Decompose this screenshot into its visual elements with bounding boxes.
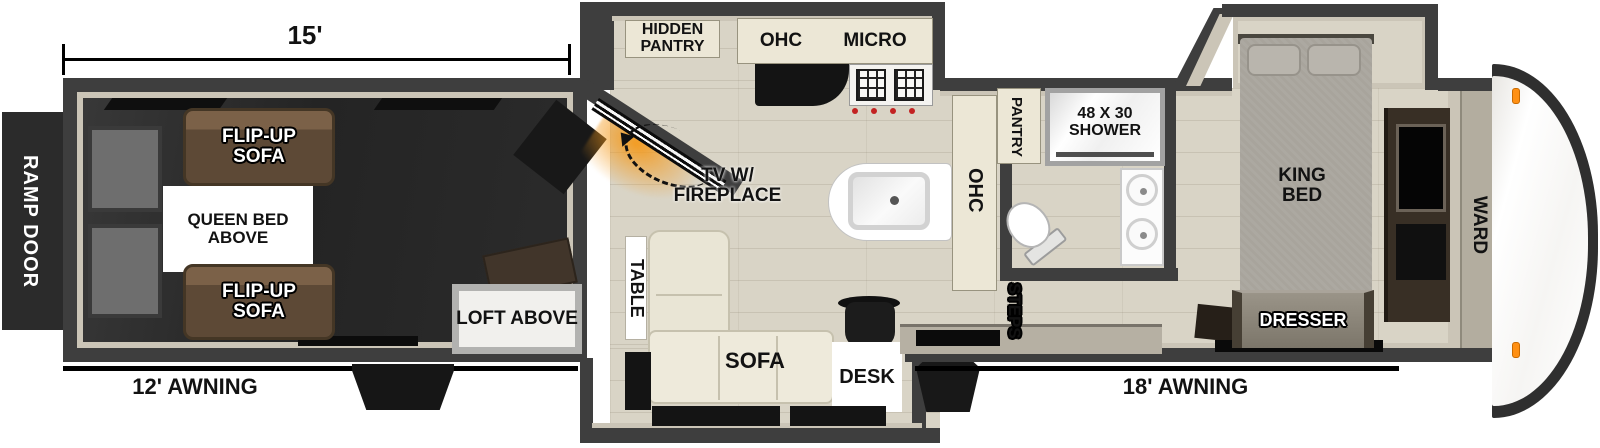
- burner-icon: [894, 69, 924, 101]
- table-label: TABLE: [626, 240, 647, 336]
- dimension-tick-left: [62, 44, 65, 75]
- kitchen-sink: [848, 172, 930, 230]
- marker-light-icon: [1512, 342, 1520, 358]
- flip-up-sofa-top: FLIP-UP SOFA: [183, 108, 335, 186]
- slideout-right-wall: [1425, 4, 1438, 90]
- pillow: [1247, 44, 1301, 76]
- vanity-sink-icon: [1126, 174, 1158, 206]
- bath-bottom-wall: [1000, 268, 1178, 281]
- loft-above: LOFT ABOVE: [452, 284, 582, 354]
- living-window: [790, 406, 886, 426]
- awning-line-left: [63, 366, 578, 371]
- stove-knobs: [852, 108, 936, 116]
- living-window: [652, 406, 780, 426]
- flip-up-sofa-bottom: FLIP-UP SOFA: [183, 264, 335, 340]
- awning-right-label: 18' AWNING: [1108, 376, 1263, 399]
- stove: [849, 64, 933, 106]
- ward-label: WARD: [1468, 150, 1490, 300]
- desk: DESK: [832, 342, 902, 412]
- kitchen-left-wall: [580, 2, 614, 90]
- flip-up-sofa-top-label: FLIP-UP SOFA: [204, 127, 314, 167]
- steps-label: STEPS: [1004, 282, 1024, 340]
- rv-floorplan: 15' RAMP DOOR FLIP-UP SOFA QUEEN BED ABO…: [0, 0, 1600, 448]
- garage-ceiling-vent: [374, 98, 502, 110]
- dimension-line: [63, 58, 571, 61]
- flip-up-sofa-bottom-label: FLIP-UP SOFA: [204, 282, 314, 322]
- queen-bed-above-label: QUEEN BED ABOVE: [178, 211, 298, 246]
- kitchen-right-wall: [931, 2, 945, 90]
- dimension-label: 15': [270, 22, 340, 49]
- bedroom-tv-icon: [1396, 124, 1446, 212]
- entry-mat: [916, 330, 1000, 346]
- dresser-label: DRESSER: [1259, 311, 1346, 330]
- queen-bed-above: QUEEN BED ABOVE: [163, 186, 313, 272]
- micro-label: MICRO: [840, 31, 910, 51]
- faucet-icon: [890, 196, 899, 205]
- slideout-top-wall: [1222, 4, 1438, 17]
- loft-above-label: LOFT ABOVE: [456, 309, 578, 329]
- ramp-door-label: RAMP DOOR: [18, 122, 41, 322]
- pantry-label: PANTRY: [1008, 91, 1025, 162]
- garage-entry-step: [352, 364, 454, 410]
- bath-right-wall: [1164, 88, 1176, 281]
- hidden-pantry-label: HIDDEN PANTRY: [630, 22, 715, 55]
- desk-label: DESK: [839, 367, 895, 388]
- living-bottom-wall: [580, 428, 940, 443]
- awning-left-label: 12' AWNING: [100, 376, 290, 399]
- bedroom-tv-cabinet: [1384, 108, 1450, 322]
- burner-icon: [856, 69, 886, 101]
- garage-window: [88, 126, 162, 212]
- dresser: DRESSER: [1232, 290, 1374, 348]
- king-bed-label: KING BED: [1262, 166, 1342, 206]
- sofa-label: SOFA: [700, 350, 810, 373]
- awning-line-right: [915, 366, 1399, 371]
- ohc-side-label: OHC: [963, 140, 986, 240]
- garage-window: [88, 224, 162, 318]
- hidden-pantry: HIDDEN PANTRY: [625, 20, 720, 58]
- tv-fireplace-label: TV W/ FIREPLACE: [660, 166, 795, 206]
- dimension-tick-right: [568, 44, 571, 75]
- pillow: [1307, 44, 1361, 76]
- vanity-sink-icon: [1126, 218, 1158, 250]
- shower-label: 48 X 30 SHOWER: [1055, 106, 1155, 139]
- living-window: [625, 352, 651, 410]
- ohc-top-label: OHC: [756, 31, 806, 51]
- living-left-wall: [580, 358, 593, 442]
- marker-light-icon: [1512, 88, 1520, 104]
- kitchen-top-wall: [580, 2, 945, 16]
